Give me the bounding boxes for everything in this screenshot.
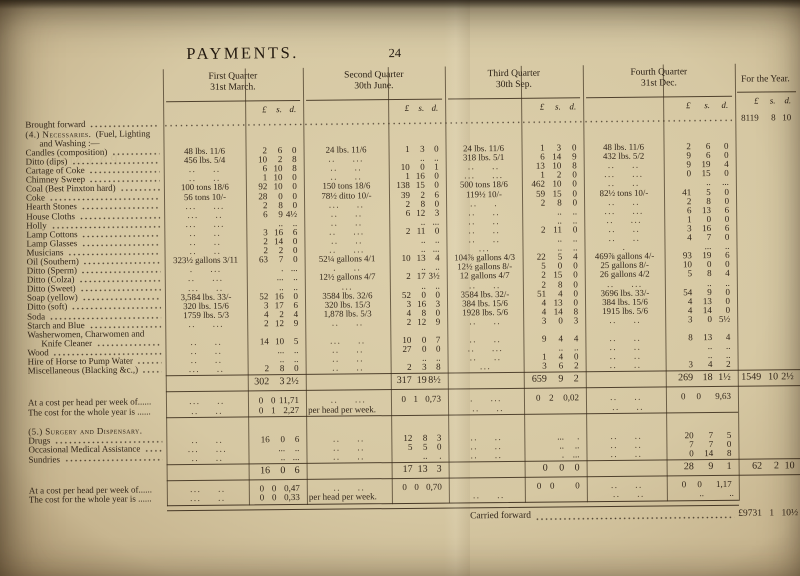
- lsd-cell: 000,70: [392, 482, 449, 492]
- quantity-cell: [586, 373, 666, 387]
- lsd-cell: [527, 490, 589, 500]
- lsd-cell: 000,33: [249, 493, 307, 503]
- quarter-total: 2891: [667, 461, 739, 475]
- year-value: 1549102½: [738, 372, 800, 386]
- column-header-q2: Second Quarter30th June.: [303, 70, 445, 93]
- lsd-cell: 362: [524, 362, 586, 372]
- scanned-ledger-page: PAYME PAYMENTS. 24 First Quarter31st Mar…: [0, 0, 800, 576]
- quarter-total: 269181½: [666, 372, 738, 386]
- lsd-header: £s.d.: [388, 103, 445, 114]
- page-title: PAYMENTS.: [150, 43, 336, 65]
- lsd-header: £s.d.: [521, 101, 583, 112]
- quantity-cell: [166, 377, 248, 391]
- quarter-total: 65992: [524, 374, 586, 388]
- lsd-cell: 280: [248, 364, 306, 374]
- quantity-cell: [306, 376, 391, 390]
- quantity-cell: .. ..: [306, 363, 391, 373]
- header-underline: [306, 99, 442, 101]
- quarter-total: 30232½: [248, 376, 306, 390]
- quantity-cell: .. ..: [586, 449, 666, 459]
- row-label: [20, 466, 167, 480]
- row-label: The cost for the whole year is ......: [19, 407, 166, 418]
- year-value: [738, 448, 800, 458]
- quantity-cell: [167, 465, 249, 479]
- page-number: 24: [389, 46, 402, 61]
- header-underline: [586, 96, 732, 98]
- lsd-cell: ....: [669, 489, 741, 499]
- row-label: The cost for the whole year is ......: [20, 494, 167, 505]
- photo-shadow-top: [0, 0, 800, 9]
- column-header-year: For the Year.: [733, 74, 798, 85]
- page-sheet: PAYME PAYMENTS. 24 First Quarter31st Mar…: [0, 0, 800, 576]
- quantity-cell: .. ..: [588, 402, 668, 412]
- carried-forward-label: Carried forward: [470, 510, 531, 523]
- header-underline: [737, 91, 796, 93]
- quantity-cell: .. ..: [589, 490, 669, 500]
- quantity-cell: .. ..: [166, 406, 248, 416]
- column-header-q4: Fourth Quarter31st Dec.: [583, 67, 735, 90]
- lsd-cell: 238: [391, 363, 448, 373]
- lsd-cell: 012,27: [248, 406, 306, 416]
- quantity-cell: .. ..: [166, 453, 248, 463]
- lsd-cell: ....: [524, 450, 586, 460]
- lsd-cell: .....: [248, 453, 306, 463]
- table-row: Carried forward£9731 1 10½: [20, 507, 800, 527]
- quarter-total: 000: [525, 462, 587, 476]
- lsd-header: £s.d.: [735, 95, 798, 106]
- quantity-cell: [587, 461, 667, 475]
- quantity-cell: .. ..: [306, 452, 391, 462]
- year-value: [738, 360, 800, 370]
- lsd-cell: 010,73: [391, 395, 448, 405]
- year-value: 62210: [739, 460, 800, 474]
- quantity-cell: ... ..: [166, 365, 248, 375]
- quarter-total: 17133: [392, 463, 449, 477]
- table-body: Brought forward8119810(4.) Necessaries. …: [16, 112, 800, 527]
- lsd-header: £s.d.: [245, 104, 303, 115]
- column-header-q1: First Quarter31st March.: [163, 71, 303, 94]
- lsd-cell: 0148: [666, 448, 738, 458]
- lsd-cell: [526, 403, 588, 413]
- row-label: Sundries: [19, 454, 166, 465]
- carried-forward-total: £9731 1 10½: [738, 507, 800, 520]
- quantity-cell: .. ..: [586, 361, 666, 371]
- quantity-cell: per head per week.: [307, 492, 394, 502]
- lsd-header: £s.d.: [663, 100, 735, 111]
- lsd-cell: ...: [391, 451, 448, 461]
- lsd-cell: [393, 404, 450, 414]
- year-value: 8119810: [735, 112, 798, 123]
- carried-indent: [20, 510, 470, 526]
- quantity-cell: ... ..: [167, 494, 249, 504]
- quarter-total: 317198½: [391, 375, 448, 389]
- row-label: Miscellaneous (Blacking &c.,): [19, 366, 166, 377]
- quantity-cell: per head per week.: [306, 405, 393, 415]
- lsd-cell: [668, 402, 740, 412]
- header-underline: [166, 100, 300, 102]
- year-value: [740, 401, 800, 411]
- year-value: [741, 488, 800, 498]
- lsd-cell: 342: [666, 360, 738, 370]
- quantity-cell: [307, 464, 392, 478]
- page-crease: [444, 0, 470, 576]
- quarter-total: 1606: [249, 465, 307, 479]
- lsd-cell: [394, 492, 451, 502]
- row-label: [19, 378, 166, 392]
